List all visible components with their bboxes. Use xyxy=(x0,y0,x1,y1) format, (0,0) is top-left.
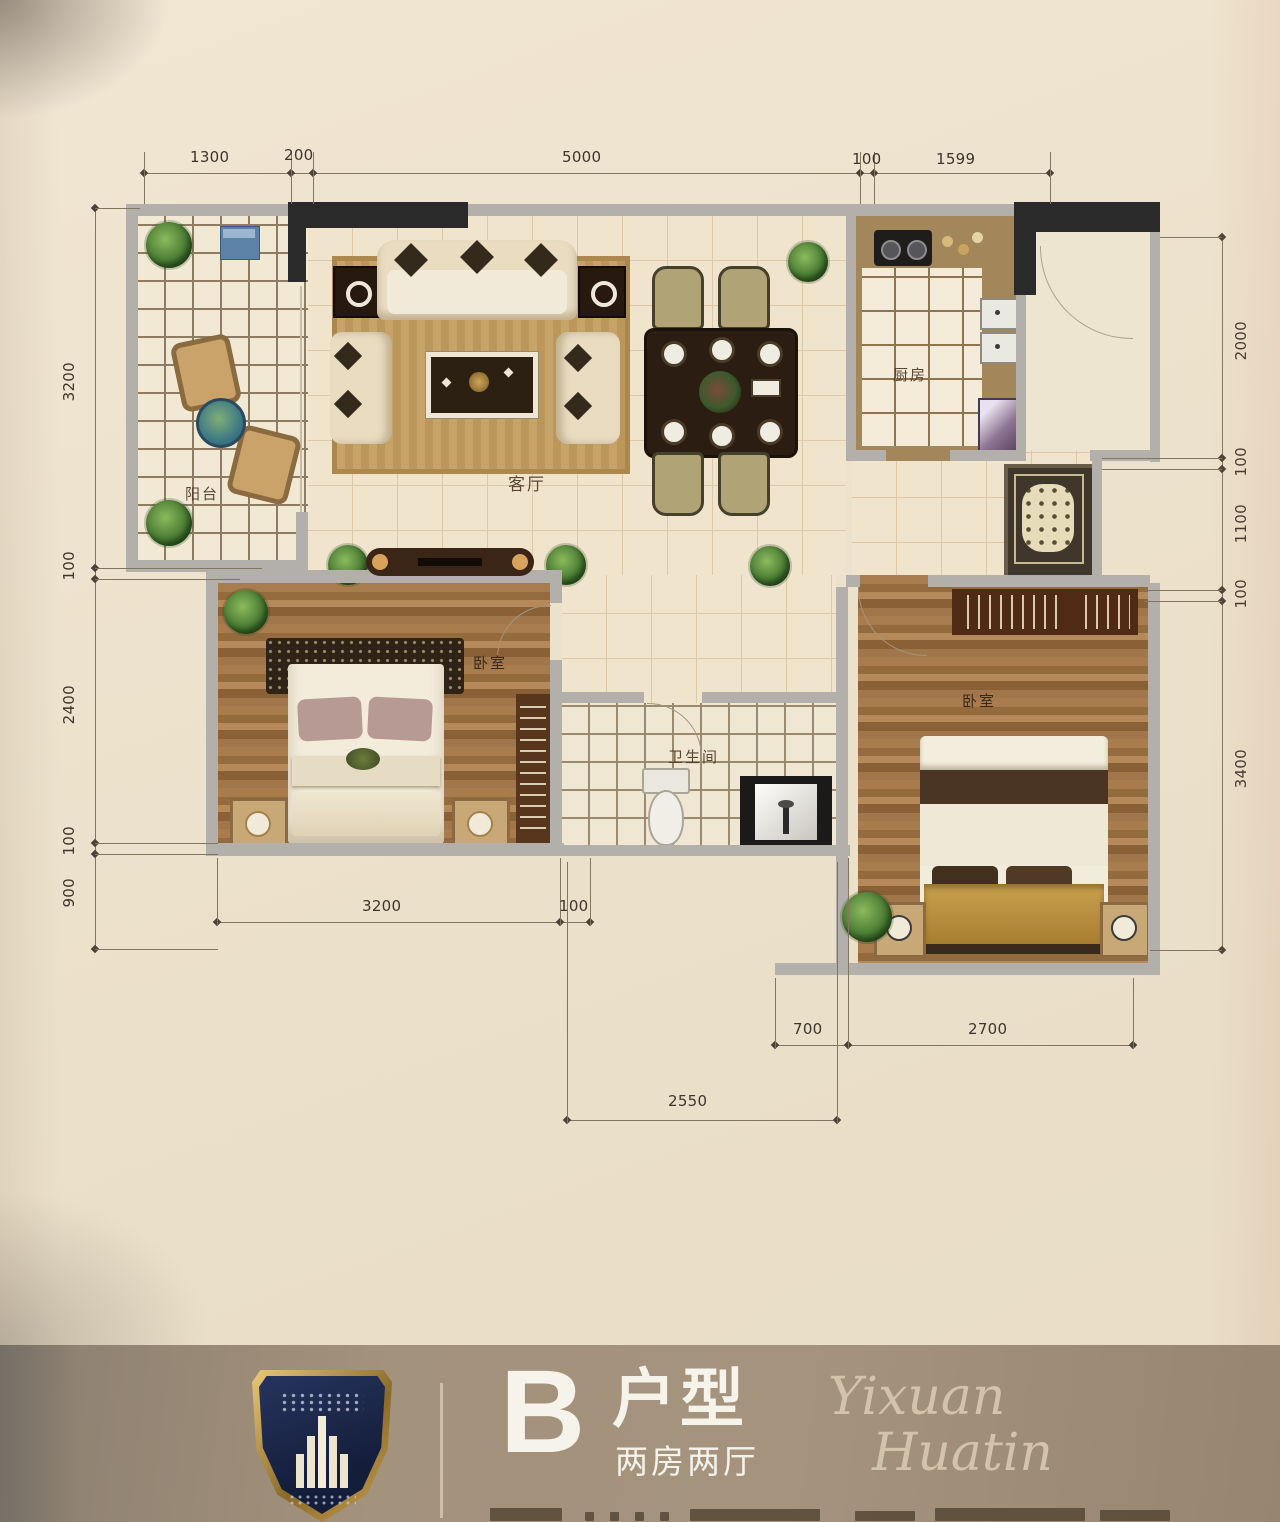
room-label-bedroom-left: 卧室 xyxy=(473,652,507,673)
wall xyxy=(1150,216,1160,462)
dim-extension xyxy=(1150,950,1222,951)
potted-plant-icon xyxy=(224,590,268,634)
dim-label: 2550 xyxy=(668,1092,707,1110)
sofa-cushion xyxy=(564,392,592,420)
dining-chair xyxy=(652,452,704,516)
dim-line xyxy=(217,922,590,923)
side-table xyxy=(333,266,381,318)
building-bar-icon xyxy=(318,1416,326,1488)
table-decor xyxy=(504,368,514,378)
hallway-floor xyxy=(562,575,836,703)
balcony-table xyxy=(196,398,246,448)
plate xyxy=(709,337,735,363)
dim-extension xyxy=(1050,152,1051,204)
console-knob xyxy=(372,554,388,570)
dim-label: 700 xyxy=(793,1020,823,1038)
dim-extension xyxy=(567,862,568,1123)
dim-label: 1300 xyxy=(190,148,229,166)
wall xyxy=(206,843,564,856)
floorplan-photo: 阳台 客厅 厨房 卧室 卫生间 卧室 1300 200 5000 100 159… xyxy=(0,0,1280,1522)
duvet-mid xyxy=(920,804,1108,866)
dim-label: 900 xyxy=(60,878,78,908)
sofa-cushion xyxy=(564,344,592,372)
building-bar-icon xyxy=(340,1454,348,1488)
room-label-bedroom-right: 卧室 xyxy=(962,690,996,711)
kitchen-floor xyxy=(862,268,982,446)
kitchen-jar xyxy=(972,232,983,243)
dim-extension xyxy=(217,858,218,925)
centerpiece xyxy=(699,371,741,413)
dining-chair xyxy=(718,452,770,516)
dim-extension xyxy=(95,949,218,950)
dim-line xyxy=(144,173,1050,174)
wall xyxy=(1148,583,1160,975)
cropped-caption-fragment xyxy=(855,1511,915,1521)
room-label-bathroom: 卫生间 xyxy=(668,746,719,767)
shower-drain xyxy=(783,806,789,834)
dim-label: 2400 xyxy=(60,685,78,724)
band-left-shade xyxy=(0,1345,80,1522)
shower xyxy=(740,776,832,848)
room-label-living: 客厅 xyxy=(508,470,546,495)
wall xyxy=(1090,450,1160,461)
potted-plant-icon xyxy=(750,546,790,586)
gold-blanket xyxy=(924,884,1104,946)
tv-console xyxy=(366,548,534,576)
building-bar-icon xyxy=(296,1454,304,1488)
burner xyxy=(881,240,901,260)
wall xyxy=(846,575,860,587)
dim-extension xyxy=(1160,237,1222,238)
kitchen-jar xyxy=(942,236,953,247)
shower-head xyxy=(778,800,794,808)
plate xyxy=(757,341,783,367)
kitchen-sink xyxy=(980,298,1018,330)
sofa-two-seat xyxy=(330,332,392,444)
wall xyxy=(702,692,846,703)
cropped-caption-fragment xyxy=(610,1512,619,1521)
potted-plant-icon xyxy=(788,242,828,282)
sofa-cushion xyxy=(334,390,362,418)
wall xyxy=(846,450,886,461)
potted-plant-icon xyxy=(146,222,192,268)
plate xyxy=(709,423,735,449)
divider xyxy=(440,1383,443,1518)
wall xyxy=(846,216,856,456)
sofa-three-seat xyxy=(377,240,577,320)
dim-label: 100 xyxy=(1232,579,1250,609)
footboard xyxy=(920,944,1108,954)
cropped-caption-fragment xyxy=(585,1512,594,1521)
plate xyxy=(661,419,687,445)
dark-band xyxy=(920,770,1108,804)
tv-screen xyxy=(418,558,482,566)
kitchen-jar xyxy=(958,244,969,255)
dim-line xyxy=(775,1045,1133,1046)
cropped-caption-fragment xyxy=(1100,1510,1170,1521)
side-table-lamp xyxy=(591,281,617,307)
sofa-cushion xyxy=(460,240,494,274)
drain xyxy=(995,310,1000,315)
wall xyxy=(126,204,138,572)
duvet-top xyxy=(920,736,1108,770)
dim-label: 5000 xyxy=(562,148,601,166)
kitchen-sink xyxy=(980,332,1018,364)
pillow xyxy=(367,696,433,741)
potted-plant-icon xyxy=(146,500,192,546)
unit-subtitle: 两房两厅 xyxy=(615,1445,759,1478)
wall xyxy=(562,692,644,703)
room-label-kitchen: 厨房 xyxy=(893,364,927,385)
wall xyxy=(296,512,308,572)
dining-chair xyxy=(652,266,704,330)
double-bed xyxy=(920,736,1108,954)
dim-label: 3200 xyxy=(60,362,78,401)
dining-table xyxy=(644,328,798,458)
dim-extension xyxy=(1144,590,1222,591)
developer-logo xyxy=(252,1370,392,1522)
building-bar-icon xyxy=(329,1436,337,1488)
rug-medallion xyxy=(1022,484,1074,552)
dim-label: 100 xyxy=(1232,447,1250,477)
hanger-marks xyxy=(1076,595,1130,629)
coffee-table xyxy=(426,352,538,418)
dim-label: 2700 xyxy=(968,1020,1007,1038)
brand-script-line2: Huatin xyxy=(872,1427,1053,1479)
side-table xyxy=(578,266,626,318)
wardrobe xyxy=(952,589,1138,635)
dim-extension xyxy=(775,978,776,1048)
wall xyxy=(775,963,1160,975)
dim-extension xyxy=(95,568,262,569)
dim-label: 3400 xyxy=(1232,749,1250,788)
dim-extension xyxy=(1133,978,1134,1048)
wall xyxy=(550,583,562,603)
dim-label: 1599 xyxy=(936,150,975,168)
unit-letter: B xyxy=(500,1353,585,1471)
wall xyxy=(550,660,562,856)
wall xyxy=(206,570,218,856)
refrigerator xyxy=(978,398,1020,452)
dim-extension xyxy=(837,862,838,1123)
unit-word: 户型 xyxy=(612,1367,748,1431)
chaise-chair xyxy=(556,332,620,444)
room-label-balcony: 阳台 xyxy=(185,483,219,504)
nightstand xyxy=(1100,902,1150,958)
dim-label: 3200 xyxy=(362,897,401,915)
dim-label: 1100 xyxy=(1232,504,1250,543)
building-bar-icon xyxy=(307,1436,315,1488)
cropped-caption-fragment xyxy=(660,1512,669,1521)
nightstand-lamp xyxy=(467,811,493,837)
hanger-marks xyxy=(520,700,546,838)
washer-lid xyxy=(223,229,255,238)
dim-extension xyxy=(1144,601,1222,602)
dim-line xyxy=(567,1120,837,1121)
nightstand-lamp xyxy=(1111,915,1137,941)
cropped-caption-fragment xyxy=(935,1508,1085,1521)
plate xyxy=(661,341,687,367)
structural-column xyxy=(288,202,306,282)
dim-label: 100 xyxy=(852,150,882,168)
plate xyxy=(757,419,783,445)
brand-script-line1: Yixuan xyxy=(828,1371,1005,1423)
wall xyxy=(1092,461,1102,587)
burner xyxy=(907,240,927,260)
table-decor xyxy=(469,372,489,392)
dining-chair xyxy=(718,266,770,330)
dim-extension xyxy=(95,854,218,855)
pillow xyxy=(297,696,363,741)
dim-label: 200 xyxy=(284,146,314,164)
dim-extension xyxy=(95,579,240,580)
drain xyxy=(995,344,1000,349)
dim-label: 100 xyxy=(60,826,78,856)
entry-rug xyxy=(1004,464,1102,582)
wall xyxy=(550,845,850,856)
balcony-glass-door xyxy=(300,286,302,512)
double-bed xyxy=(288,664,444,844)
brand-band: B 户型 两房两厅 Yixuan Huatin xyxy=(0,1345,1280,1522)
bed-flowers xyxy=(346,748,380,770)
cropped-caption-fragment xyxy=(690,1509,820,1521)
dim-extension xyxy=(848,858,849,1048)
console-knob xyxy=(512,554,528,570)
washing-machine xyxy=(220,226,260,260)
cropped-caption-fragment xyxy=(490,1508,562,1521)
wall xyxy=(950,450,1026,461)
stove xyxy=(874,230,932,266)
dim-extension xyxy=(95,843,218,844)
dim-extension xyxy=(95,208,140,209)
wall xyxy=(132,204,1160,216)
dim-extension xyxy=(590,858,591,925)
structural-column xyxy=(1014,202,1036,295)
wall xyxy=(928,575,1150,587)
base-ornament-icon xyxy=(288,1494,356,1506)
dim-extension xyxy=(1102,469,1222,470)
blanket-fold xyxy=(292,792,440,836)
nightstand-lamp xyxy=(245,811,271,837)
sofa-cushion xyxy=(334,342,362,370)
wardrobe xyxy=(516,694,550,844)
napkin xyxy=(751,379,781,397)
cropped-caption-fragment xyxy=(635,1512,644,1521)
hanger-marks xyxy=(958,595,1066,629)
dim-label: 100 xyxy=(559,897,589,915)
table-decor xyxy=(442,378,452,388)
dim-extension xyxy=(1102,458,1222,459)
dim-extension xyxy=(144,152,145,204)
toilet-bowl xyxy=(648,790,684,846)
dim-label: 100 xyxy=(60,551,78,581)
structural-column xyxy=(288,202,468,228)
dim-label: 2000 xyxy=(1232,321,1250,360)
potted-plant-icon xyxy=(842,892,892,942)
crown-ornament-icon xyxy=(280,1392,364,1412)
side-table-lamp xyxy=(346,281,372,307)
